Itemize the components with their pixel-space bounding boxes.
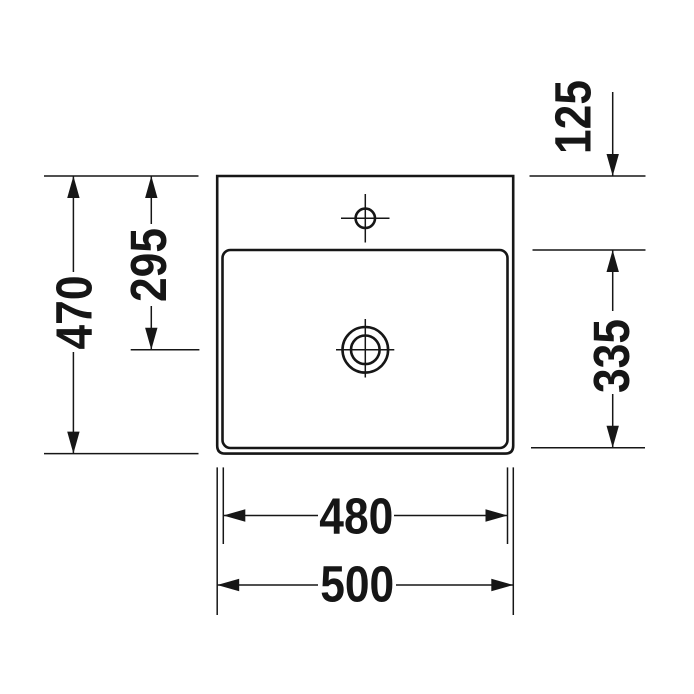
svg-text:470: 470 bbox=[46, 276, 103, 350]
svg-text:500: 500 bbox=[320, 556, 394, 613]
svg-text:335: 335 bbox=[583, 319, 640, 393]
svg-text:125: 125 bbox=[545, 80, 602, 154]
svg-text:480: 480 bbox=[319, 487, 393, 544]
svg-text:295: 295 bbox=[120, 228, 177, 302]
